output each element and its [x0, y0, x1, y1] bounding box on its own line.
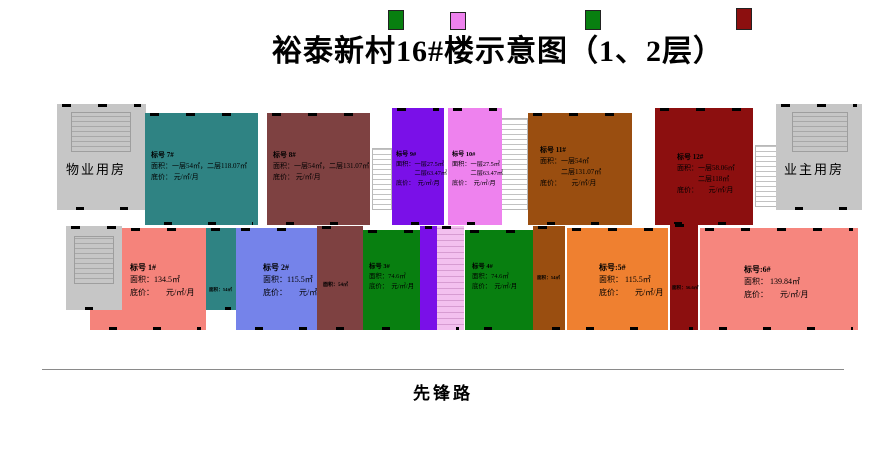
- unit-9-info: 标号 9#面积：一层27.5㎡ 二层63.47㎡底价： 元/㎡/月: [396, 150, 447, 188]
- unit-9-ground-strip: [420, 226, 437, 330]
- unit-8-info: 标号 8#面积：一层54㎡，二层131.07㎡底价： 元/㎡/月: [273, 150, 369, 183]
- roof-block-3: [585, 10, 601, 30]
- unit-7: 标号 7#面积：一层54㎡，二层118.07㎡底价： 元/㎡/月: [145, 113, 258, 225]
- stairs-icon: [792, 112, 848, 152]
- property-room-label: 物业用房: [66, 159, 126, 178]
- page-title: 裕泰新村16#楼示意图（1、2层）: [110, 26, 886, 70]
- unit-12-info: 标号 12#面积：一层58.06㎡ 二层118㎡底价： 元/㎡/月: [677, 152, 735, 195]
- owner-room-label: 业主用房: [784, 159, 844, 178]
- unit-4-info: 标号 4#面积：74.6㎡底价： 元/㎡/月: [472, 262, 517, 292]
- strip-info: 面积：54㎡: [323, 282, 348, 290]
- stairwell-block: [66, 226, 122, 310]
- road-label: 先锋路: [0, 379, 886, 404]
- unit-10: 标号 10#面积：一层27.5㎡ 二层63.47㎡底价： 元/㎡/月: [448, 108, 502, 225]
- unit-7-info: 标号 7#面积：一层54㎡，二层118.07㎡底价： 元/㎡/月: [151, 150, 247, 183]
- unit-11-ground-strip: 面积：54㎡: [533, 226, 565, 330]
- unit-7-ground-strip: 面积：54㎡: [206, 228, 236, 310]
- road-line: [42, 369, 844, 370]
- unit-3-info: 标号 3#面积：74.6㎡底价： 元/㎡/月: [369, 262, 414, 292]
- stairwell-icon: [755, 145, 777, 207]
- stairwell-icon: [372, 148, 392, 210]
- floor-plan-canvas: 裕泰新村16#楼示意图（1、2层） 物业用房 标号 7#面积：一层54㎡，二层1…: [0, 0, 886, 451]
- unit-2: 标号 2#面积：115.5㎡底价： 元/㎡/月: [236, 228, 317, 330]
- unit-6-info: 标号:6#面积： 139.84㎡底价： 元/㎡/月: [744, 264, 808, 301]
- unit-10-info: 标号 10#面积：一层27.5㎡ 二层63.47㎡底价： 元/㎡/月: [452, 150, 503, 188]
- unit-10-ground-strip: [437, 226, 464, 330]
- property-management-room: 物业用房: [57, 104, 146, 210]
- unit-8-ground-strip: 面积：54㎡: [317, 226, 363, 330]
- unit-3: 标号 3#面积：74.6㎡底价： 元/㎡/月: [363, 230, 420, 330]
- unit-11-info: 标号 11#面积：一层54㎡ 二层131.07㎡底价： 元/㎡/月: [540, 145, 601, 188]
- stairs-icon: [74, 236, 114, 284]
- unit-12-ground-strip: 面积：56.6㎡: [670, 224, 698, 330]
- unit-11: 标号 11#面积：一层54㎡ 二层131.07㎡底价： 元/㎡/月: [528, 113, 632, 225]
- roof-block-2: [450, 12, 466, 30]
- owner-room: 业主用房: [776, 104, 862, 210]
- strip-info: 面积：54㎡: [209, 286, 232, 293]
- unit-6: 标号:6#面积： 139.84㎡底价： 元/㎡/月: [700, 228, 858, 330]
- stairs-icon: [71, 112, 131, 152]
- unit-9: 标号 9#面积：一层27.5㎡ 二层63.47㎡底价： 元/㎡/月: [392, 108, 444, 225]
- unit-4: 标号 4#面积：74.6㎡底价： 元/㎡/月: [465, 230, 533, 330]
- strip-info: 面积：56.6㎡: [672, 284, 698, 291]
- unit-5-info: 标号:5#面积： 115.5㎡底价： 元/㎡/月: [599, 262, 663, 299]
- unit-1-info: 标号 1#面积：134.5㎡底价： 元/㎡/月: [130, 262, 194, 299]
- roof-block-4: [736, 8, 752, 30]
- roof-block-1: [388, 10, 404, 30]
- unit-8: 标号 8#面积：一层54㎡，二层131.07㎡底价： 元/㎡/月: [267, 113, 370, 225]
- unit-12: 标号 12#面积：一层58.06㎡ 二层118㎡底价： 元/㎡/月: [655, 108, 753, 225]
- unit-5: 标号:5#面积： 115.5㎡底价： 元/㎡/月: [567, 228, 668, 330]
- strip-info: 面积：54㎡: [537, 274, 560, 281]
